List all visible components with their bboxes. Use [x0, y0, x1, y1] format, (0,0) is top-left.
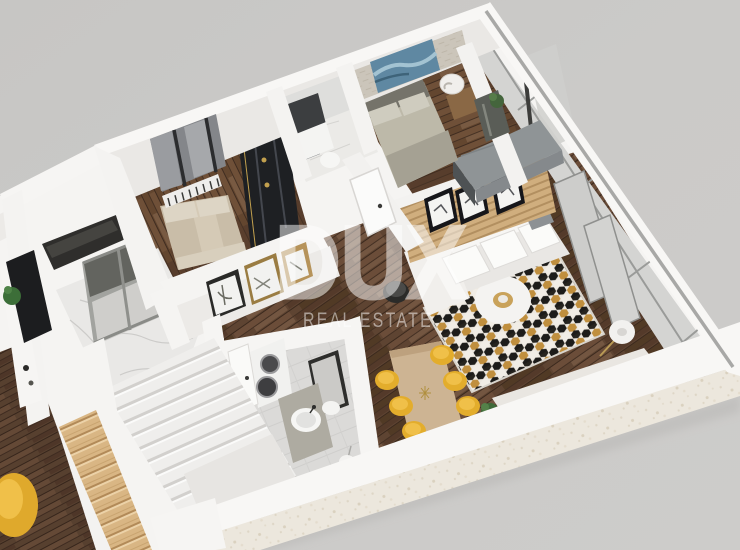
svg-text:REAL ESTATE: REAL ESTATE [303, 309, 433, 332]
svg-text:DUX: DUX [275, 205, 467, 321]
